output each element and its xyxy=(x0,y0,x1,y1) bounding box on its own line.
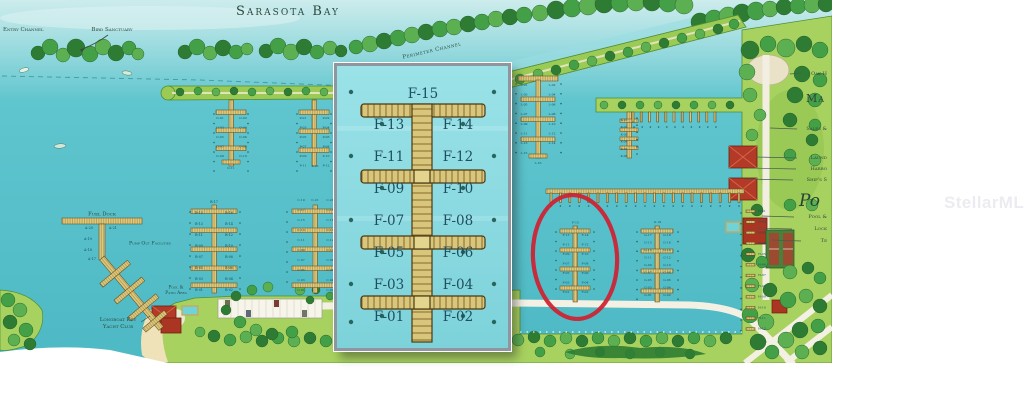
slip-label: G-15 xyxy=(644,241,652,245)
slip-label: B-08 xyxy=(225,255,233,259)
pool-patio-label-2: Patio Area xyxy=(165,291,187,296)
slip-label: O-04 xyxy=(239,126,247,130)
slip-label: P-06 xyxy=(323,135,330,139)
laundry-label: Laund xyxy=(811,155,827,161)
condo-pool xyxy=(726,222,740,232)
slip-label: H-01 xyxy=(758,209,766,213)
slip-label: A-19 xyxy=(83,237,92,241)
slip-label: C-01 xyxy=(297,288,304,292)
slip-label: L-13 xyxy=(520,141,527,145)
slip-label: G-14 xyxy=(663,248,671,252)
slip-label: F-06 xyxy=(582,271,589,275)
slip-label: L-01 xyxy=(520,83,527,87)
slip-label: L-15 xyxy=(520,151,527,155)
slip-label: B-12 xyxy=(225,233,233,237)
slip-label: L-07 xyxy=(520,112,527,116)
slip-label: F-10 xyxy=(582,252,589,256)
slip-label: O-10 xyxy=(239,154,247,158)
slip-label: C-07 xyxy=(297,258,304,262)
slip-label: C-05 xyxy=(297,268,304,272)
pump-out-label: Pump Out Facilities xyxy=(129,241,171,247)
slip-label: B-16 xyxy=(225,211,233,215)
slip-label: L-11 xyxy=(520,132,527,136)
marina-heading: Ma xyxy=(806,92,825,105)
slip-label: G-05 xyxy=(644,278,652,282)
tennis-label: Te xyxy=(821,238,827,244)
slip-label: B-17 xyxy=(210,200,218,204)
slip-label: P-07 xyxy=(300,145,307,149)
harbor-label: Harbo xyxy=(810,166,827,172)
slip-label: B-07 xyxy=(195,255,203,259)
slip-label: O-11 xyxy=(227,166,235,170)
slip-label: H-09 xyxy=(758,295,766,299)
slip-label: H-06 xyxy=(758,263,766,267)
slip-label: L-09 xyxy=(520,122,527,126)
slip-label: K-05 xyxy=(620,147,627,151)
inset-canvas: F-01F-02F-03F-04F-05F-06F-07F-08F-09F-10… xyxy=(337,66,508,348)
slip-label: P-02 xyxy=(323,116,330,120)
yacht-club-label-1: Longboat Key xyxy=(100,317,137,323)
slip-label: B-13 xyxy=(195,222,203,226)
slip-label: G-02 xyxy=(663,293,671,297)
slip-label: C-08 xyxy=(326,258,333,262)
slip-label: L-05 xyxy=(520,102,527,106)
slip-label: L-14 xyxy=(548,141,555,145)
slip-label: P-11 xyxy=(300,164,307,168)
slip-label: B-15 xyxy=(195,211,203,215)
slip-label: G-11 xyxy=(644,256,652,260)
slip-label: C-15 xyxy=(297,218,304,222)
slip-label: G-18 xyxy=(663,233,671,237)
slip-label: O-02 xyxy=(239,116,247,120)
slip-label: P-10 xyxy=(323,154,330,158)
slip-label: B-02 xyxy=(225,288,233,292)
slip-label: A-17 xyxy=(87,257,96,261)
slip-label: K-04 xyxy=(620,140,627,144)
slip-label: F-08 xyxy=(582,262,589,266)
slip-label: F-09 xyxy=(563,252,570,256)
slip-label: P-01 xyxy=(300,116,307,120)
slip-label: O-05 xyxy=(216,135,224,139)
slip-label: L-04 xyxy=(548,93,555,97)
slip-label: O-07 xyxy=(216,145,224,149)
slip-label: G-19 xyxy=(654,220,662,224)
slip-label: L-16 xyxy=(534,161,541,165)
slip-label: F-04 xyxy=(582,281,589,285)
slip-label: L-06 xyxy=(548,102,555,106)
slip-label: F-13 xyxy=(374,117,405,133)
slip-label: F-10 xyxy=(443,181,474,197)
slip-label: F-12 xyxy=(443,149,474,165)
slip-label: C-03 xyxy=(297,278,304,282)
slip-label: F-15 xyxy=(572,221,579,225)
slip-label: C-10 xyxy=(326,248,333,252)
slip-label: B-09 xyxy=(195,244,203,248)
slip-label: C-16 xyxy=(326,218,333,222)
slip-label: F-03 xyxy=(563,281,570,285)
slip-label: H-08 xyxy=(758,284,766,288)
slip-label: F-04 xyxy=(443,277,474,293)
slip-label: A-18 xyxy=(83,248,92,252)
slip-label: C-06 xyxy=(326,268,333,272)
slip-label: H-07 xyxy=(758,273,766,277)
slip-label: F-02 xyxy=(443,309,474,325)
slip-label: C-20 xyxy=(326,198,333,202)
slip-label: O-01 xyxy=(216,116,224,120)
slip-label: F-07 xyxy=(374,213,405,229)
slip-label: F-05 xyxy=(563,271,570,275)
slip-label: K-01 xyxy=(620,118,627,122)
slip-label: H-04 xyxy=(758,241,766,245)
slip-label: G-12 xyxy=(663,256,671,260)
script-heading: Po xyxy=(798,191,820,211)
slip-label: P-05 xyxy=(300,135,307,139)
entry-channel-label: Entry Channel xyxy=(3,27,44,33)
slip-label: G-08 xyxy=(663,271,671,275)
slip-label: G-10 xyxy=(663,263,671,267)
slip-label: C-19 xyxy=(297,198,304,202)
slip-label: C-04 xyxy=(326,278,333,282)
slip-label: F-09 xyxy=(374,181,405,197)
slip-label: G-06 xyxy=(663,278,671,282)
slip-label: P-08 xyxy=(323,145,330,149)
slip-label: C-14 xyxy=(326,228,333,232)
slip-label: F-03 xyxy=(374,277,405,293)
slip-label: H-11 xyxy=(758,316,766,320)
slip-label: B-06 xyxy=(225,266,233,270)
slip-label: P-04 xyxy=(323,126,330,130)
slip-label: C-02 xyxy=(326,288,333,292)
slip-label: F-14 xyxy=(443,117,474,133)
slip-label: F-05 xyxy=(374,245,405,261)
slip-label: G-07 xyxy=(644,271,652,275)
slip-label: F-01 xyxy=(374,309,405,325)
fuel-dock-label: Fuel Dock xyxy=(88,212,117,218)
slip-label: L-12 xyxy=(548,132,555,136)
slip-label: G-04 xyxy=(663,286,671,290)
bay-title: Sarasota Bay xyxy=(236,4,340,19)
slip-label: H-03 xyxy=(758,230,766,234)
slip-label: P-12 xyxy=(323,164,330,168)
slip-label: H-12 xyxy=(758,327,766,331)
slip-label: C-12 xyxy=(326,238,333,242)
slip-label: F-11 xyxy=(563,243,570,247)
lockers-label: Lock xyxy=(814,226,828,232)
slip-label: B-11 xyxy=(195,233,203,237)
slip-label: F-01 xyxy=(563,290,570,294)
slip-label: F-06 xyxy=(443,245,474,261)
slip-label: L-02 xyxy=(548,83,555,87)
slip-label: P-03 xyxy=(300,126,307,130)
slip-label: O-08 xyxy=(239,145,247,149)
slip-label: G-01 xyxy=(644,293,652,297)
slip-label: F-14 xyxy=(582,233,589,237)
slip-label: C-17 xyxy=(297,208,304,212)
club-pool xyxy=(182,306,198,315)
slip-label: O-06 xyxy=(239,135,247,139)
slip-label: B-04 xyxy=(225,277,233,281)
slip-label: F-15 xyxy=(408,86,439,102)
slip-label: F-11 xyxy=(374,149,405,165)
slip-label: B-05 xyxy=(195,266,203,270)
watermark: StellarMLS xyxy=(944,193,1024,213)
slip-label: H-05 xyxy=(758,252,766,256)
tennis-courts xyxy=(766,230,794,268)
slip-label: L-08 xyxy=(548,112,555,116)
slip-label: A-20 xyxy=(84,226,93,230)
slip-label: G-03 xyxy=(644,286,652,290)
dock-f-inset: F-01F-02F-03F-04F-05F-06F-07F-08F-09F-10… xyxy=(334,63,511,351)
slip-label: C-09 xyxy=(297,248,304,252)
slip-label: B-01 xyxy=(195,288,203,292)
oak-hammock-label: Oak H xyxy=(811,71,828,77)
slip-label: F-12 xyxy=(582,243,589,247)
sales-label: Sales & xyxy=(806,126,827,132)
slip-label: C-11 xyxy=(297,238,304,242)
slip-label: K-03 xyxy=(620,132,627,136)
slip-label: B-03 xyxy=(195,277,203,281)
slip-label: C-21 xyxy=(311,198,318,202)
slip-label: L-10 xyxy=(548,122,555,126)
slip-label: O-03 xyxy=(216,126,224,130)
slip-label: H-10 xyxy=(758,305,766,309)
slip-label: P-13 xyxy=(312,164,319,168)
pool-patio-label-1: Pool & xyxy=(169,286,184,291)
slip-label: F-02 xyxy=(582,290,589,294)
slip-label: G-09 xyxy=(644,263,652,267)
slip-label: G-13 xyxy=(644,248,652,252)
slip-label: H-02 xyxy=(758,220,766,224)
slip-label: A-21 xyxy=(108,226,117,230)
slip-label: K-06 xyxy=(620,154,627,158)
slip-label: F-07 xyxy=(563,262,570,266)
slip-label: B-14 xyxy=(225,222,233,226)
slip-label: O-09 xyxy=(216,154,224,158)
slip-label: G-17 xyxy=(644,233,652,237)
slip-label: P-09 xyxy=(300,154,307,158)
slip-label: K-02 xyxy=(620,125,627,129)
slip-label: C-13 xyxy=(297,228,304,232)
yacht-club-label-2: Yacht Club xyxy=(102,324,133,330)
slip-label: F-13 xyxy=(563,233,570,237)
marina-site-map: O-01O-02O-03O-04O-05O-06O-07O-08O-09O-10… xyxy=(0,0,1024,404)
slip-label: B-10 xyxy=(225,244,233,248)
ships-store-label: Ship's S xyxy=(807,177,828,183)
pool-label: Pool & xyxy=(808,214,827,220)
slip-label: F-08 xyxy=(443,213,474,229)
slip-label: L-03 xyxy=(520,93,527,97)
bird-sanctuary-label: Bird Sanctuary xyxy=(91,27,132,33)
slip-label: G-16 xyxy=(663,241,671,245)
slip-label: C-18 xyxy=(326,208,333,212)
